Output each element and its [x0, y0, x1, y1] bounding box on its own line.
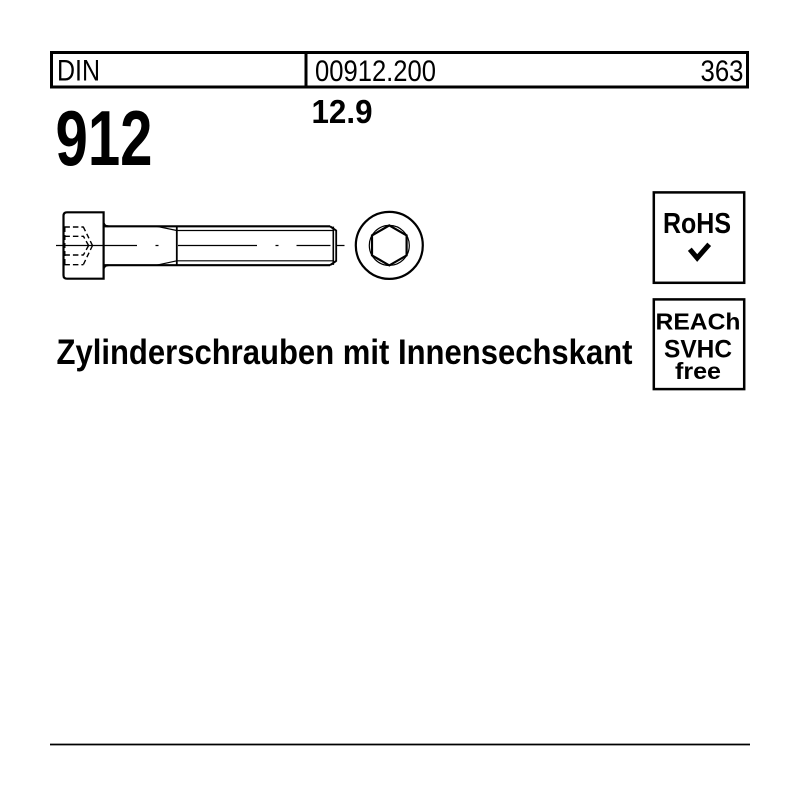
svg-text:RoHS: RoHS [663, 208, 731, 240]
svg-text:Zylinderschrauben mit Innensec: Zylinderschrauben mit Innensechskant [57, 333, 633, 372]
svg-text:12.9: 12.9 [312, 94, 373, 131]
svg-text:REACh: REACh [656, 309, 741, 335]
svg-text:912: 912 [56, 94, 153, 182]
svg-text:free: free [675, 358, 721, 384]
svg-text:363: 363 [701, 55, 744, 88]
svg-text:DIN: DIN [57, 55, 100, 88]
svg-text:00912.200: 00912.200 [315, 55, 436, 88]
